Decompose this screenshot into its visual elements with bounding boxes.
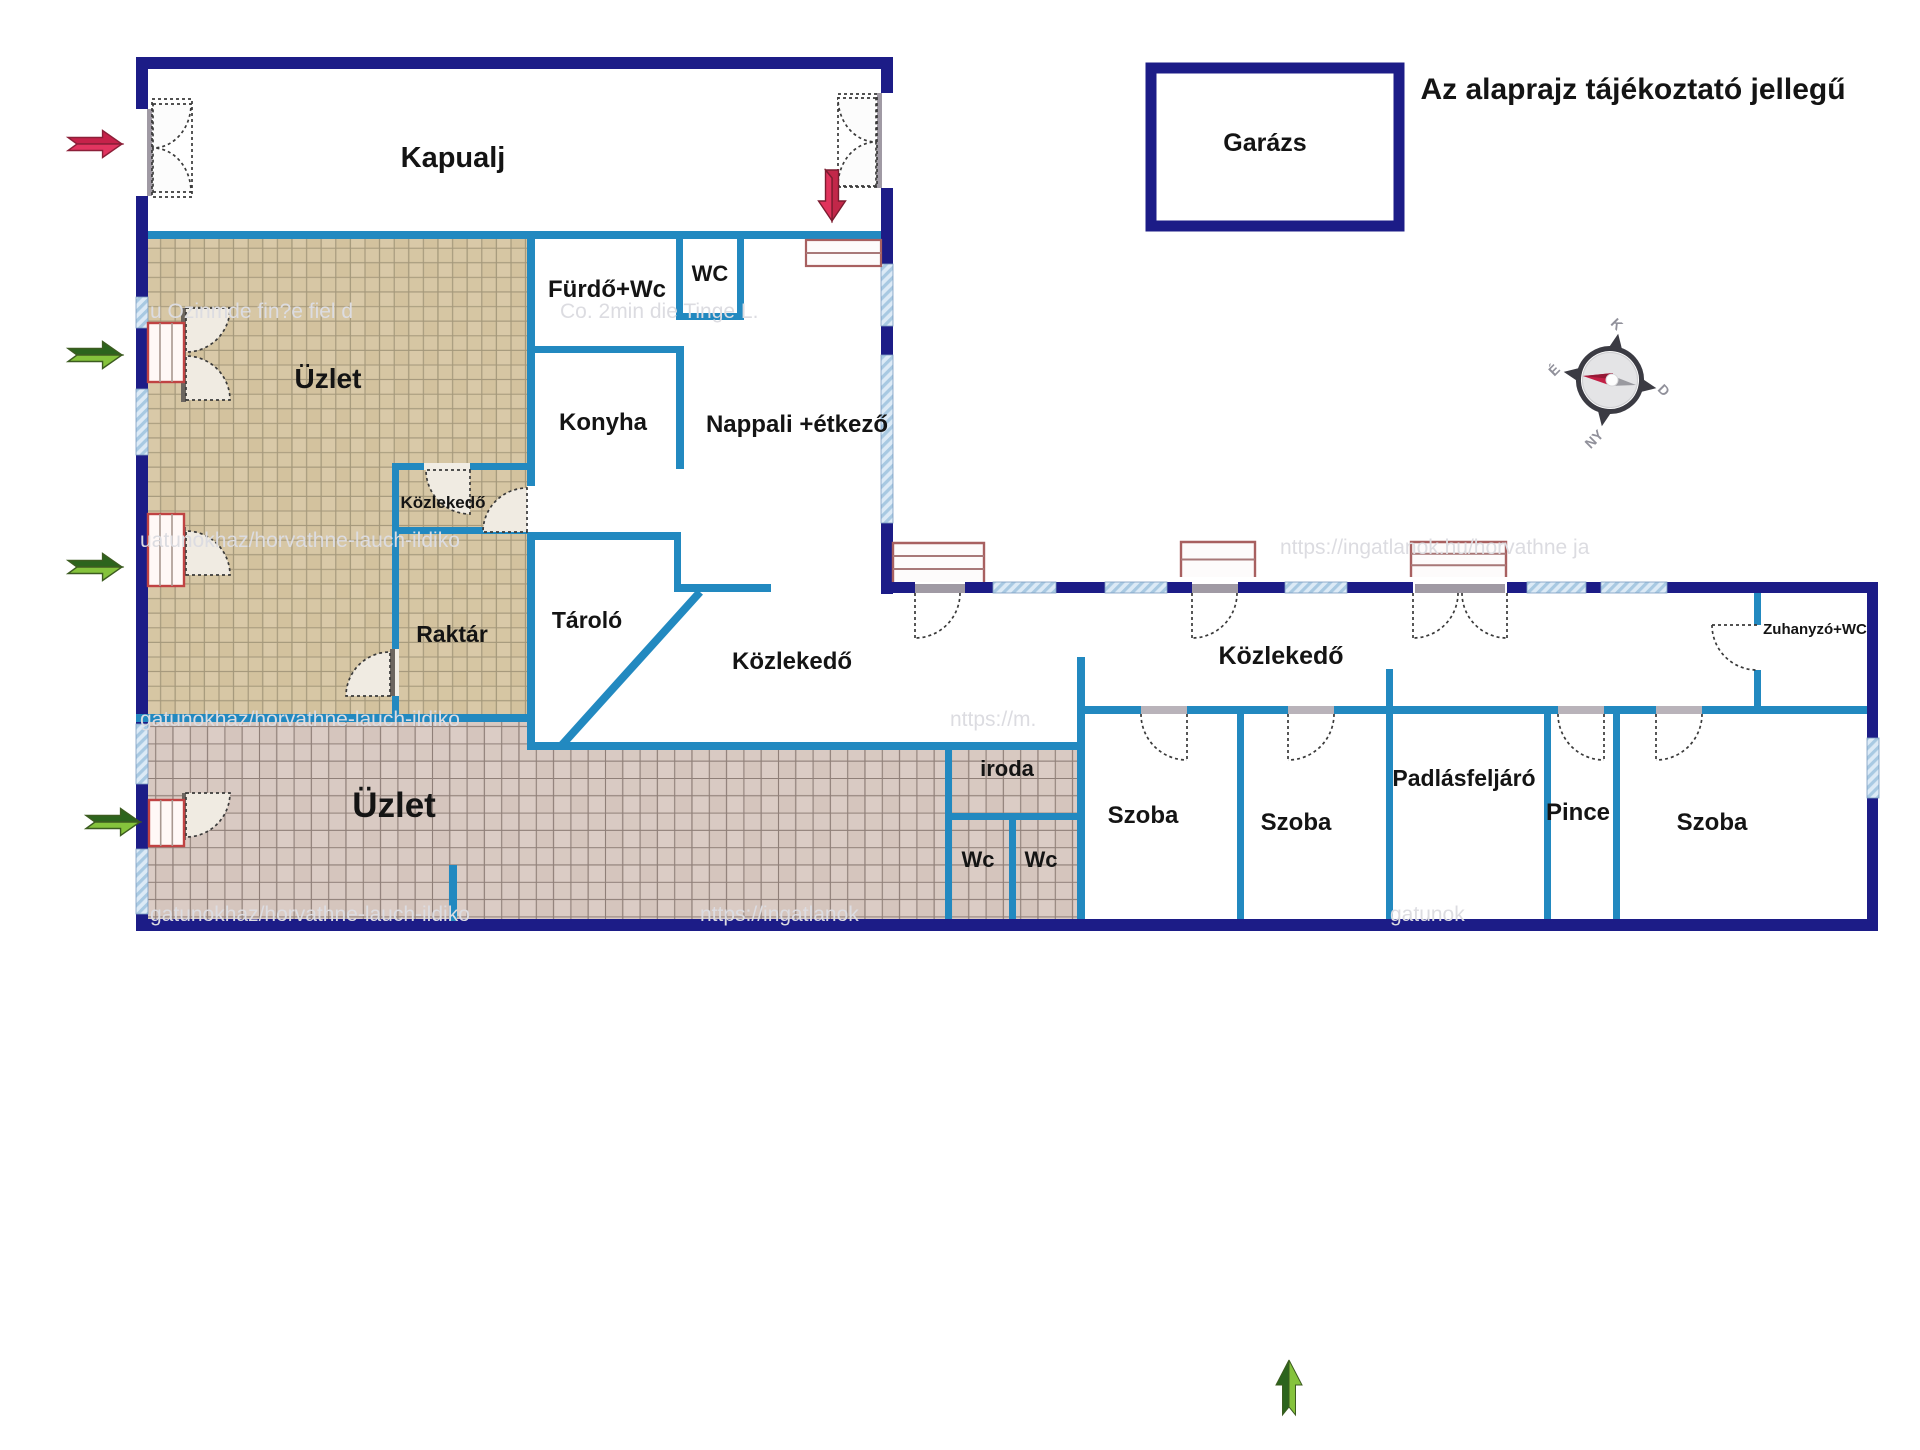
svg-text:nttps://ingatlanok.hu/horvathn: nttps://ingatlanok.hu/horvathne ja [1280,536,1590,559]
svg-text:Wc: Wc [1025,847,1058,872]
svg-text:Szoba: Szoba [1261,809,1332,836]
svg-text:gatunokhaz/horvathne-lauch-ild: gatunokhaz/horvathne-lauch-ildiko [140,708,460,731]
svg-text:NY: NY [1581,426,1607,452]
svg-text:gatunok: gatunok [1390,903,1465,926]
svg-text:Pince: Pince [1546,799,1610,826]
svg-text:gatunokhaz/horvathne-lauch-ild: gatunokhaz/horvathne-lauch-ildiko [150,903,470,926]
svg-text:Garázs: Garázs [1223,129,1306,157]
svg-text:Konyha: Konyha [559,409,648,436]
svg-text:Wc: Wc [962,847,995,872]
svg-text:D: D [1655,381,1673,399]
svg-text:Raktár: Raktár [416,621,488,647]
svg-text:Padlásfeljáró: Padlásfeljáró [1392,765,1535,791]
svg-text:Közlekedő: Közlekedő [1218,642,1343,670]
svg-text:uatunokhaz/horvathne-lauch-ild: uatunokhaz/horvathne-lauch-ildiko [140,529,460,552]
svg-text:Nappali +étkező: Nappali +étkező [706,411,888,438]
svg-text:Szoba: Szoba [1108,802,1179,829]
svg-text:Az alaprajz tájékoztató jelleg: Az alaprajz tájékoztató jellegű [1420,73,1845,106]
svg-text:Kapualj: Kapualj [401,142,506,174]
svg-text:Üzlet: Üzlet [295,363,362,394]
svg-text:Közlekedő: Közlekedő [400,493,485,512]
svg-text:Tároló: Tároló [552,607,622,633]
svg-text:Szoba: Szoba [1677,809,1748,836]
svg-text:nttps://m.: nttps://m. [950,708,1036,731]
svg-text:Közlekedő: Közlekedő [732,648,852,675]
svg-text:Üzlet: Üzlet [352,786,436,825]
svg-text:nttps://ingatlanok: nttps://ingatlanok [700,903,859,926]
svg-text:WC: WC [692,261,729,286]
svg-text:Zuhanyzó+WC: Zuhanyzó+WC [1763,621,1867,638]
svg-text:Co. 2min die Tinge L.: Co. 2min die Tinge L. [560,300,758,323]
svg-text:K: K [1608,315,1626,333]
svg-text:u Ozinmde fin?e fiel d: u Ozinmde fin?e fiel d [150,300,353,323]
svg-text:Fürdő+Wc: Fürdő+Wc [548,276,666,303]
svg-text:É: É [1545,361,1563,379]
svg-text:iroda: iroda [980,756,1035,781]
